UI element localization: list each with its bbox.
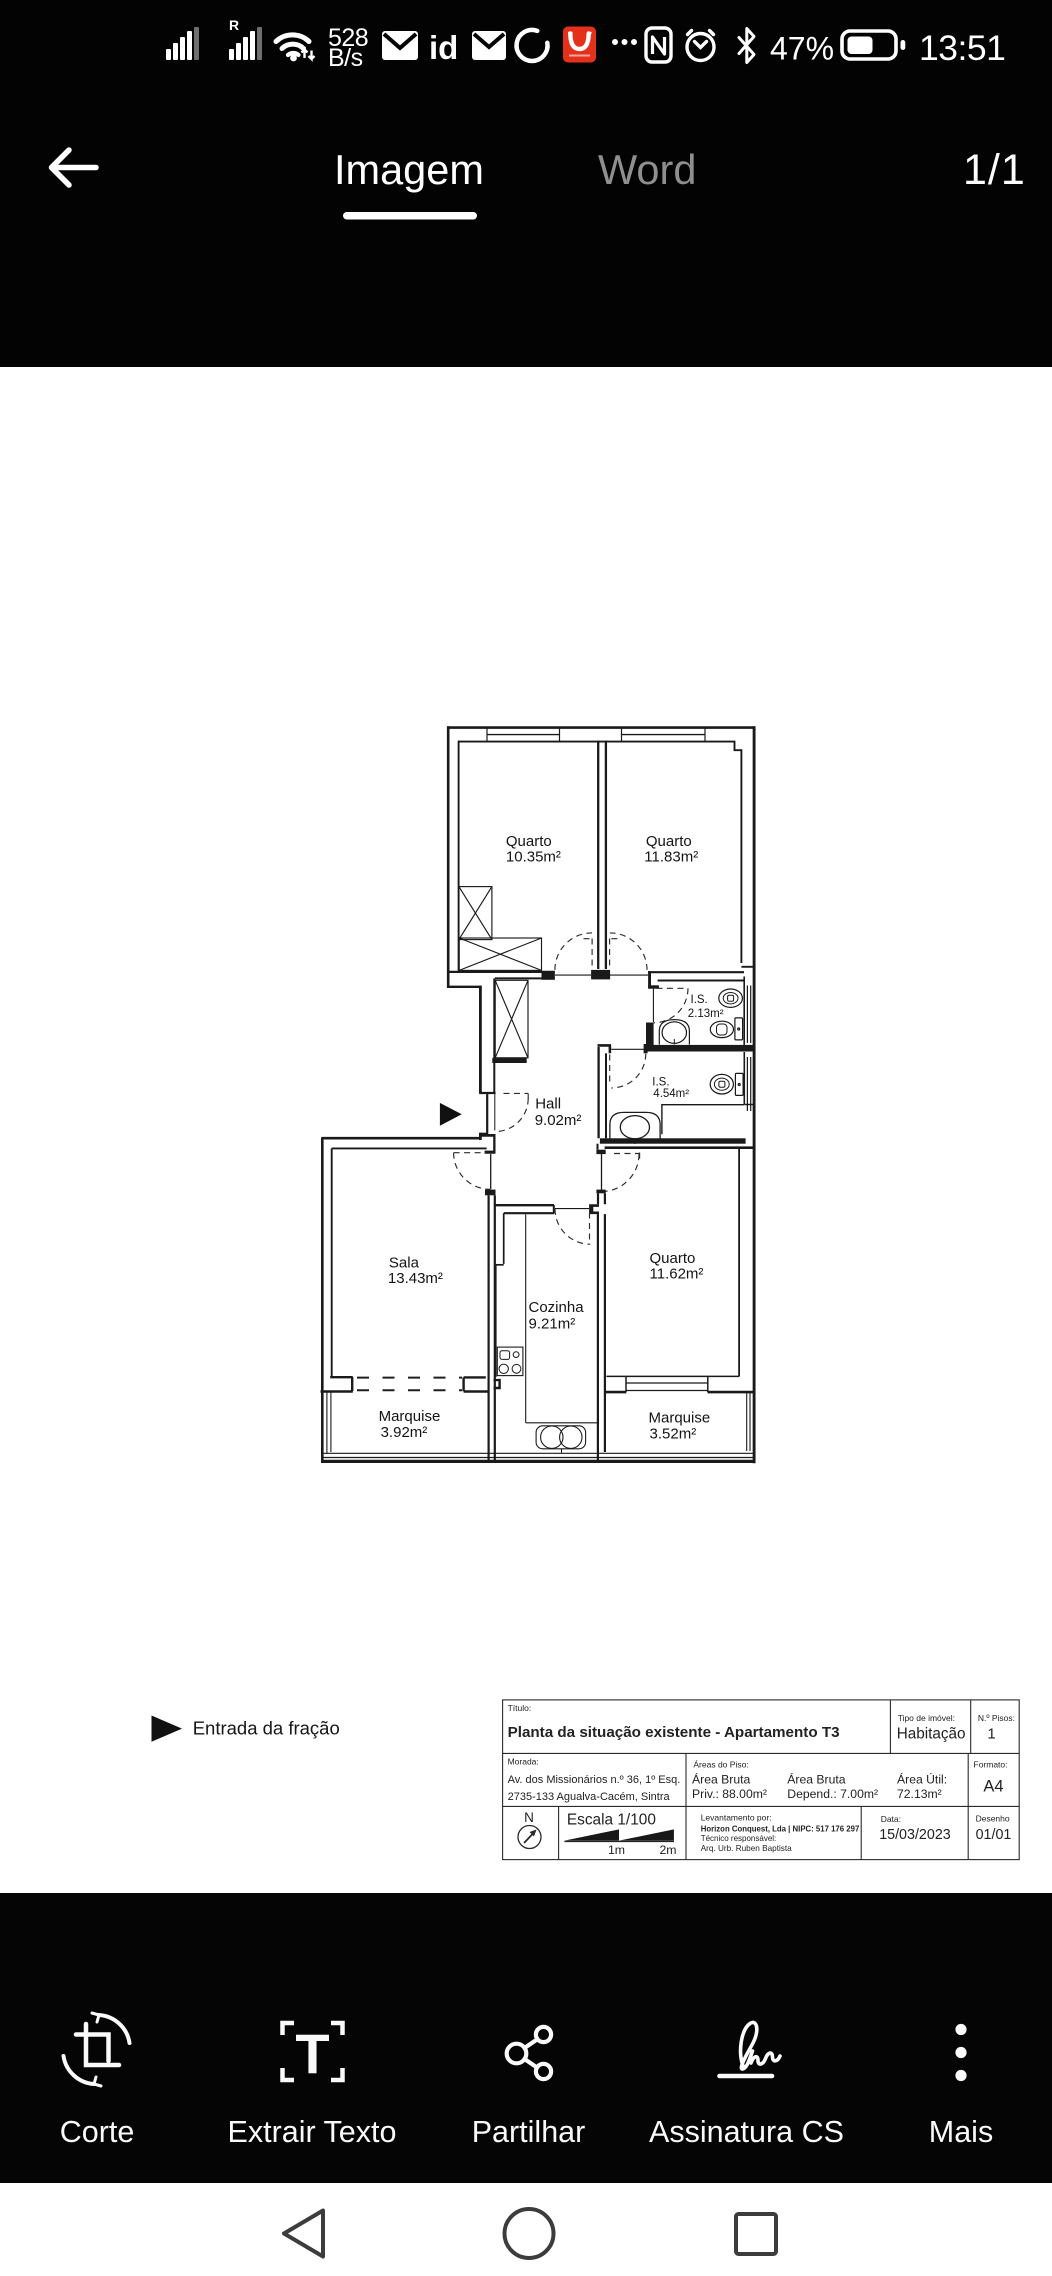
svg-text:9.21m²: 9.21m² bbox=[529, 1315, 576, 1332]
svg-text:Corte: Corte bbox=[60, 2115, 135, 2149]
svg-text:Formato:: Formato: bbox=[974, 1760, 1008, 1770]
svg-text:Extrair Texto: Extrair Texto bbox=[228, 2115, 397, 2149]
svg-text:1m: 1m bbox=[608, 1843, 625, 1857]
svg-text:Assinatura CS: Assinatura CS bbox=[649, 2115, 844, 2149]
svg-text:Escala 1/100: Escala 1/100 bbox=[567, 1812, 656, 1829]
svg-text:Horizon Conquest, Lda | NIPC:: Horizon Conquest, Lda | NIPC: 517 176 29… bbox=[701, 1825, 860, 1834]
svg-text:2735-133 Agualva-Cacém, Sintra: 2735-133 Agualva-Cacém, Sintra bbox=[508, 1791, 671, 1803]
svg-text:B/s: B/s bbox=[328, 44, 363, 72]
svg-text:Marquise: Marquise bbox=[649, 1410, 711, 1427]
svg-text:Área Bruta: Área Bruta bbox=[787, 1772, 845, 1787]
svg-text:I.S.: I.S. bbox=[691, 994, 708, 1006]
svg-text:11.62m²: 11.62m² bbox=[650, 1266, 704, 1283]
svg-text:Cozinha: Cozinha bbox=[529, 1299, 585, 1316]
svg-text:Depend.: 7.00m²: Depend.: 7.00m² bbox=[787, 1787, 878, 1801]
svg-text:1: 1 bbox=[987, 1726, 995, 1743]
svg-text:Data:: Data: bbox=[881, 1814, 901, 1824]
svg-text:Arq. Urb. Ruben Baptista: Arq. Urb. Ruben Baptista bbox=[701, 1844, 792, 1853]
svg-text:Av. dos Missionários n.º 36, 1: Av. dos Missionários n.º 36, 1º Esq. bbox=[508, 1774, 681, 1786]
svg-text:Título:: Título: bbox=[508, 1703, 532, 1713]
svg-text:Quarto: Quarto bbox=[650, 1250, 696, 1267]
svg-text:Desenho: Desenho bbox=[976, 1814, 1010, 1824]
svg-text:13.43m²: 13.43m² bbox=[388, 1270, 443, 1287]
svg-text:Tipo de imóvel:: Tipo de imóvel: bbox=[898, 1713, 955, 1723]
svg-text:N.º Pisos:: N.º Pisos: bbox=[978, 1713, 1015, 1723]
svg-text:Sala: Sala bbox=[389, 1255, 420, 1272]
svg-text:Entrada da fração: Entrada da fração bbox=[193, 1718, 340, 1739]
svg-text:Área Útil:: Área Útil: bbox=[897, 1772, 947, 1787]
svg-text:Word: Word bbox=[598, 146, 696, 193]
svg-text:Priv.: 88.00m²: Priv.: 88.00m² bbox=[692, 1787, 767, 1801]
svg-text:10.35m²: 10.35m² bbox=[506, 848, 561, 865]
svg-text:3.52m²: 3.52m² bbox=[650, 1426, 697, 1443]
svg-text:Mais: Mais bbox=[929, 2115, 993, 2149]
svg-text:Partilhar: Partilhar bbox=[472, 2115, 586, 2149]
svg-text:T: T bbox=[295, 2022, 329, 2085]
svg-text:Marquise: Marquise bbox=[379, 1408, 441, 1425]
svg-text:Áreas do Piso:: Áreas do Piso: bbox=[693, 1760, 748, 1770]
svg-text:Técnico responsável:: Técnico responsável: bbox=[701, 1834, 777, 1843]
svg-text:R: R bbox=[229, 17, 239, 33]
svg-text:13:51: 13:51 bbox=[919, 28, 1005, 68]
svg-text:Morada:: Morada: bbox=[508, 1757, 539, 1767]
svg-text:15/03/2023: 15/03/2023 bbox=[879, 1827, 951, 1843]
svg-text:01/01: 01/01 bbox=[976, 1827, 1012, 1843]
svg-text:3.92m²: 3.92m² bbox=[381, 1424, 428, 1441]
svg-text:Habitação: Habitação bbox=[897, 1726, 966, 1743]
svg-text:A4: A4 bbox=[983, 1778, 1003, 1796]
svg-text:Hall: Hall bbox=[535, 1096, 561, 1113]
svg-text:Planta da situação existente -: Planta da situação existente - Apartamen… bbox=[508, 1724, 840, 1741]
svg-text:2m: 2m bbox=[659, 1843, 676, 1857]
svg-text:I.S.: I.S. bbox=[652, 1077, 669, 1089]
svg-text:4.54m²: 4.54m² bbox=[653, 1088, 689, 1100]
svg-text:72.13m²: 72.13m² bbox=[897, 1787, 942, 1801]
svg-text:N: N bbox=[524, 1810, 534, 1825]
svg-text:Imagem: Imagem bbox=[334, 146, 484, 193]
svg-text:2.13m²: 2.13m² bbox=[688, 1008, 724, 1020]
svg-text:1/1: 1/1 bbox=[963, 146, 1026, 194]
svg-text:id: id bbox=[429, 29, 458, 66]
svg-text:11.83m²: 11.83m² bbox=[644, 848, 698, 865]
svg-text:Levantamento por:: Levantamento por: bbox=[701, 1813, 772, 1823]
svg-text:Área Bruta: Área Bruta bbox=[692, 1772, 750, 1787]
svg-text:47%: 47% bbox=[770, 31, 834, 67]
svg-text:9.02m²: 9.02m² bbox=[535, 1112, 582, 1129]
